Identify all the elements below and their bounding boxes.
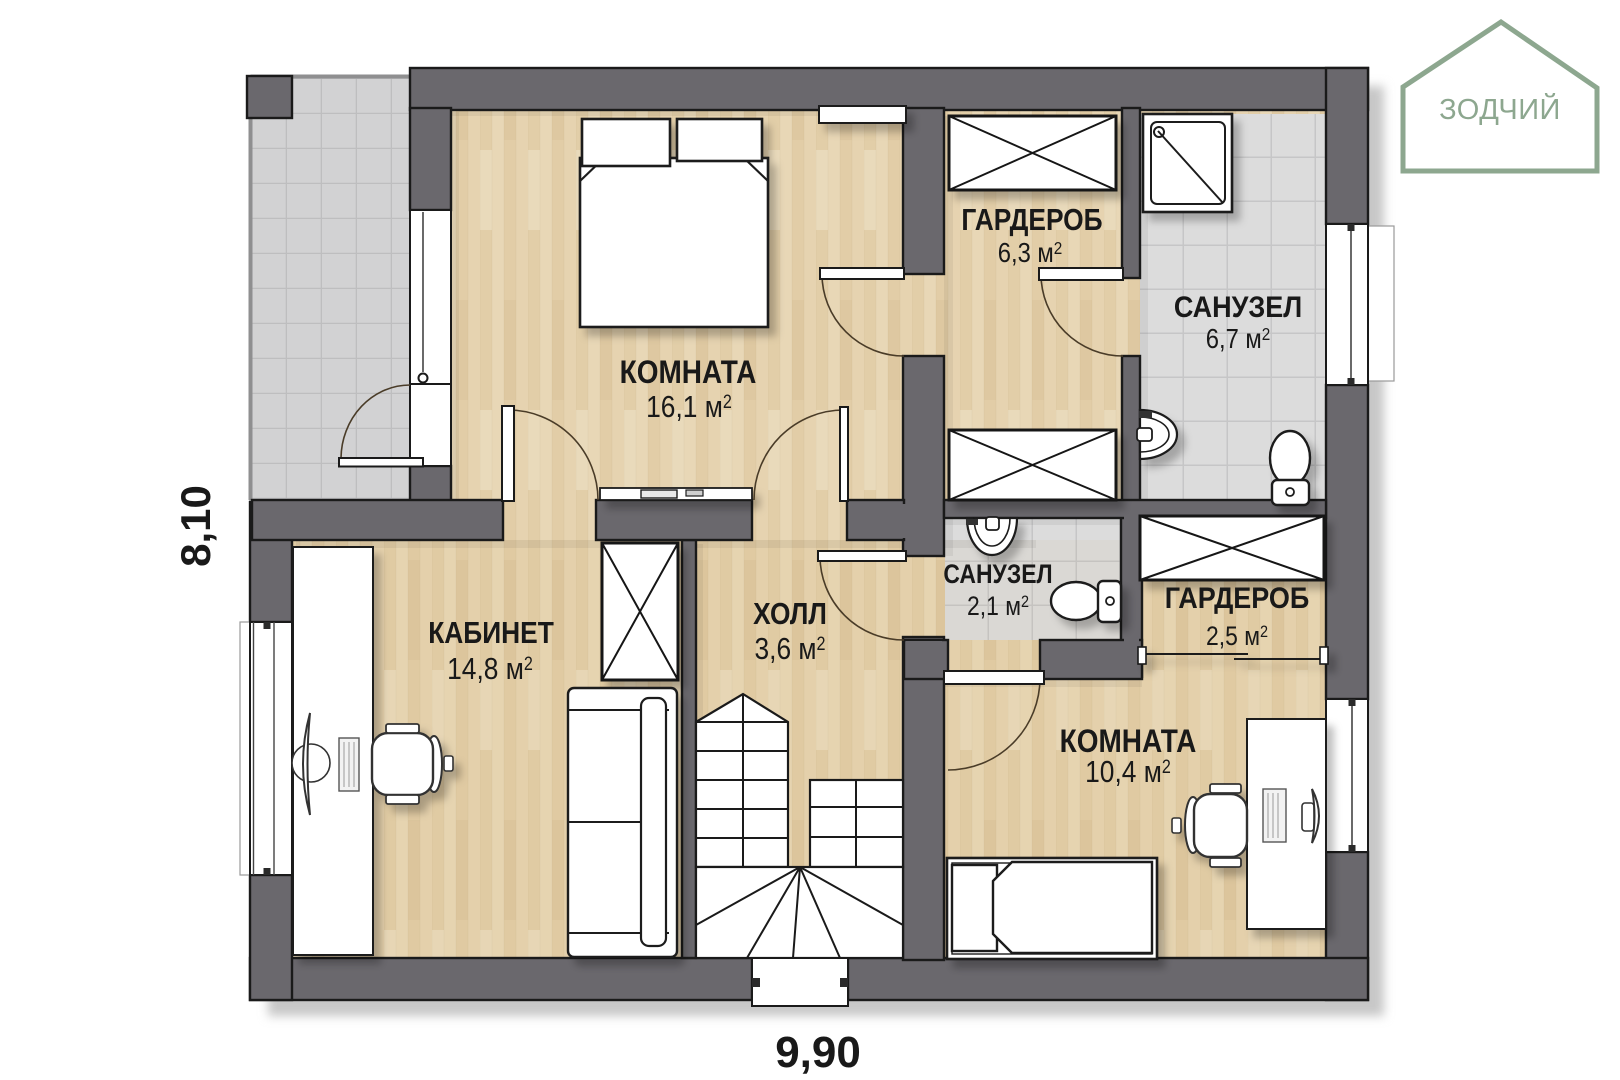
svg-text:2,5 м2: 2,5 м2 bbox=[1206, 621, 1268, 651]
svg-text:ХОЛЛ: ХОЛЛ bbox=[753, 597, 827, 631]
svg-text:КОМНАТА: КОМНАТА bbox=[620, 355, 757, 390]
svg-text:САНУЗЕЛ: САНУЗЕЛ bbox=[1174, 291, 1302, 325]
svg-text:КАБИНЕТ: КАБИНЕТ bbox=[428, 616, 554, 650]
svg-text:8,10: 8,10 bbox=[172, 485, 219, 567]
svg-text:16,1 м2: 16,1 м2 bbox=[646, 390, 732, 424]
svg-text:6,3 м2: 6,3 м2 bbox=[998, 236, 1063, 268]
svg-text:6,7 м2: 6,7 м2 bbox=[1206, 322, 1271, 354]
svg-text:ГАРДЕРОБ: ГАРДЕРОБ bbox=[961, 203, 1102, 237]
svg-text:14,8 м2: 14,8 м2 bbox=[447, 652, 533, 686]
svg-text:3,6 м2: 3,6 м2 bbox=[754, 632, 825, 666]
svg-text:САНУЗЕЛ: САНУЗЕЛ bbox=[943, 559, 1052, 589]
svg-text:9,90: 9,90 bbox=[775, 1028, 861, 1077]
svg-text:2,1 м2: 2,1 м2 bbox=[967, 591, 1029, 621]
svg-text:10,4 м2: 10,4 м2 bbox=[1085, 755, 1171, 789]
svg-text:ЗОДЧИЙ: ЗОДЧИЙ bbox=[1439, 92, 1561, 126]
svg-text:ГАРДЕРОБ: ГАРДЕРОБ bbox=[1165, 582, 1310, 616]
